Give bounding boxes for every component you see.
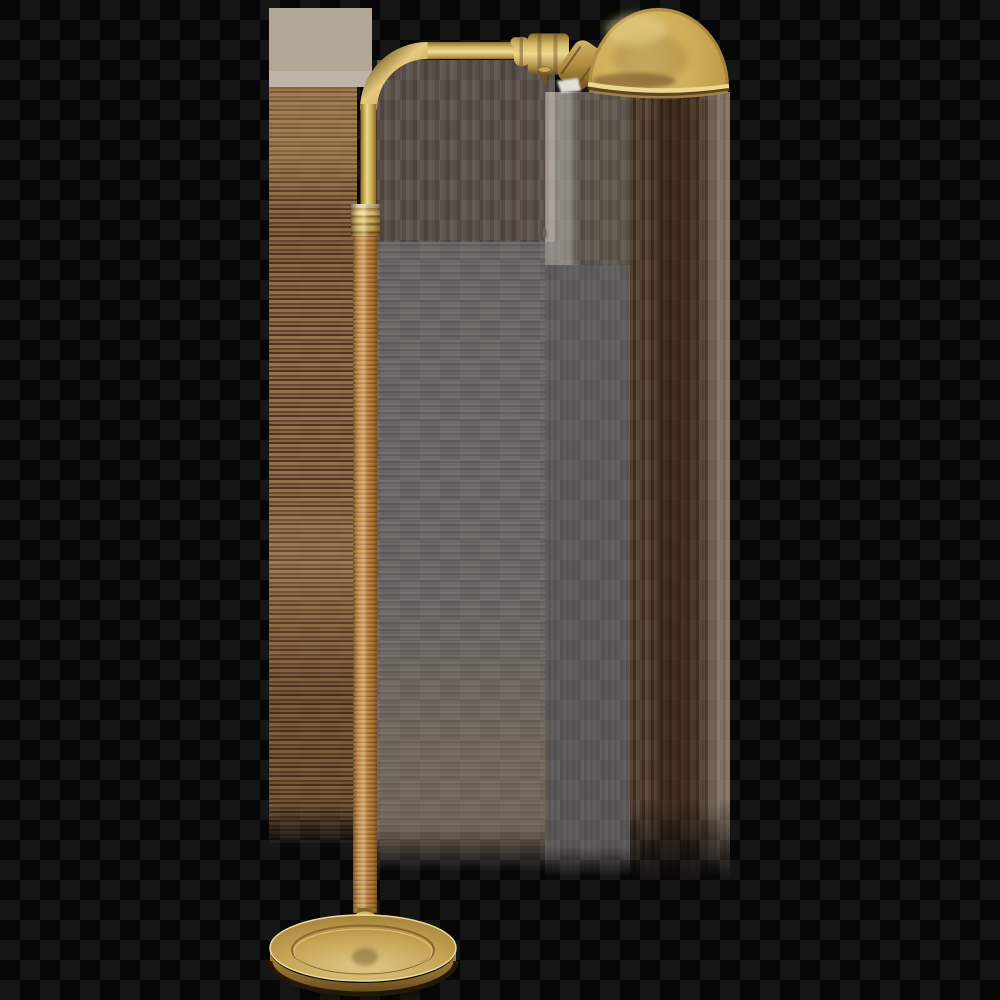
stem-collar [351, 204, 380, 237]
floor-lamp-photo [0, 0, 1000, 1000]
ball-reflection [352, 948, 378, 966]
product-photo-canvas [0, 0, 1000, 1000]
shade-rim-highlight [557, 78, 581, 93]
lamp-base [270, 915, 456, 995]
lamp-arm [369, 51, 518, 207]
pull-chain [538, 67, 551, 239]
pull-chain-end-bead [542, 228, 546, 239]
rattan-stem [353, 236, 377, 913]
